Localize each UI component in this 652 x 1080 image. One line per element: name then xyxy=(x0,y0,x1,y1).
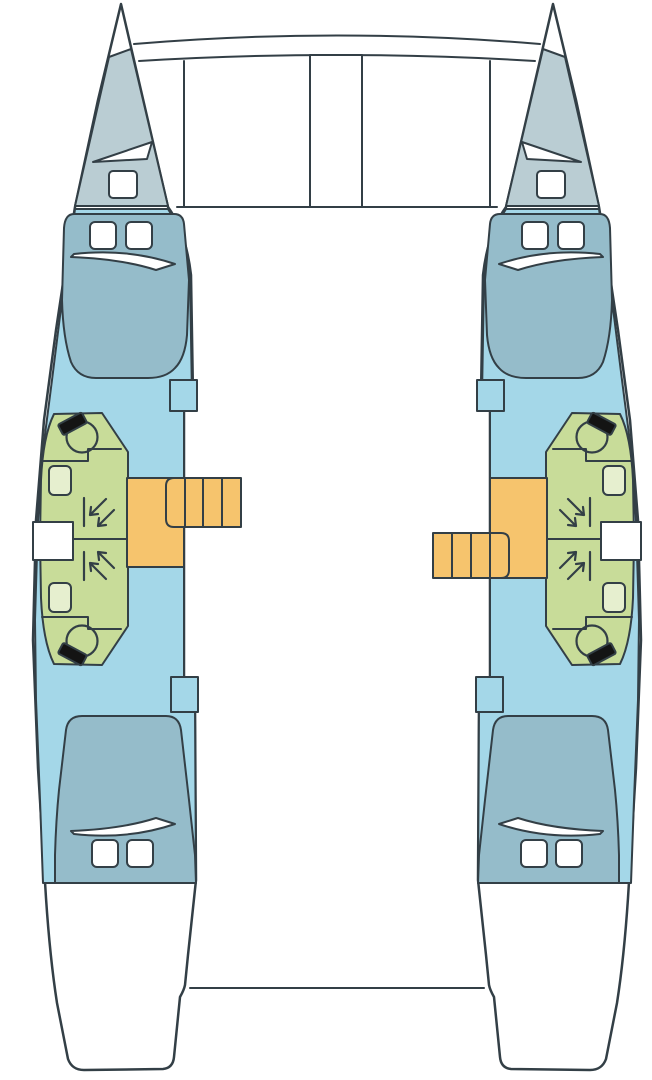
stair-tread xyxy=(203,478,222,527)
pillow-icon xyxy=(126,222,152,249)
stair-tread xyxy=(433,533,452,578)
pillow-icon xyxy=(90,222,116,249)
companionway-stairs-starboard xyxy=(433,478,547,578)
pillow-icon xyxy=(127,840,153,867)
companionway-stairs-port xyxy=(127,478,241,567)
sink-icon xyxy=(49,466,71,495)
stair-tread xyxy=(452,533,471,578)
foredeck-structure xyxy=(134,36,540,208)
head-compartment xyxy=(40,412,128,539)
stair-tread xyxy=(185,478,203,527)
catamaran-deck-plan xyxy=(0,0,652,1080)
forward-cabin-berth xyxy=(62,214,189,378)
deck-hatch-icon xyxy=(109,171,137,198)
mast-step-beam xyxy=(310,55,362,207)
stair-tread xyxy=(471,533,490,578)
cabin-door-threshold xyxy=(171,677,198,712)
side-deck-gap xyxy=(33,522,73,560)
deck-plan-svg xyxy=(0,0,652,1080)
forward-beam-upper-arc xyxy=(134,36,540,45)
cabin-door-threshold xyxy=(170,380,197,411)
stair-tread xyxy=(222,478,241,527)
stair-tread xyxy=(166,478,185,527)
berth-mattress xyxy=(55,716,196,883)
aft-cabin-berth xyxy=(55,716,196,883)
hull-port xyxy=(33,4,340,1070)
stair-tread xyxy=(490,533,509,578)
pillow-icon xyxy=(92,840,118,867)
